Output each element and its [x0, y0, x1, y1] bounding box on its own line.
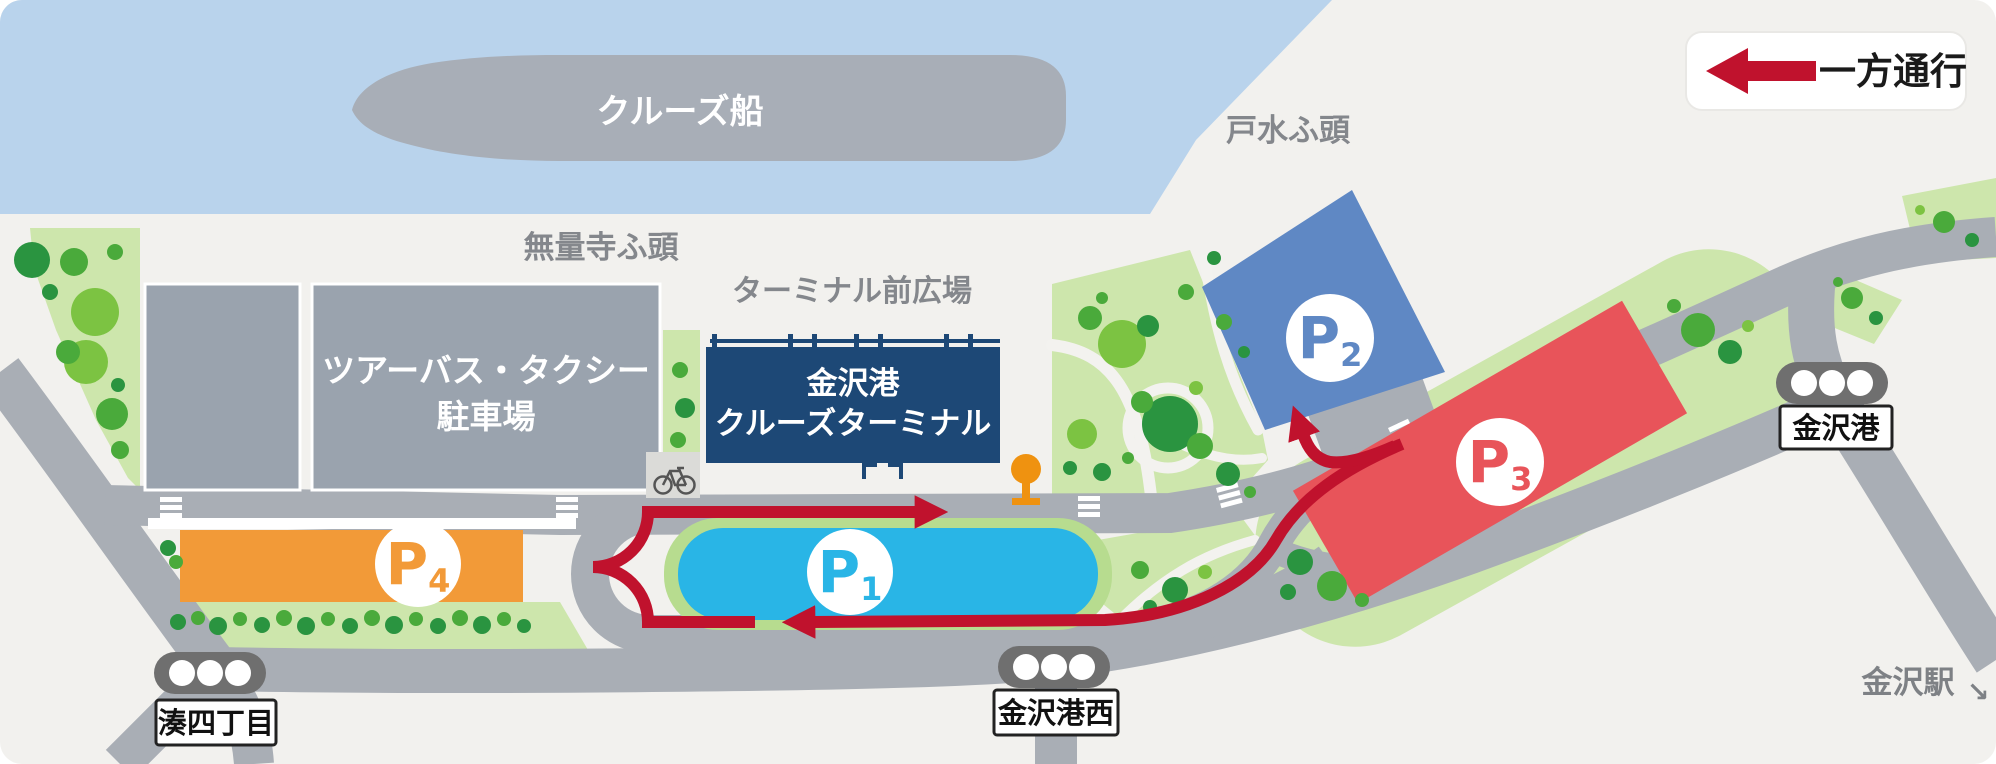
legend-one-way: 一方通行 [1686, 32, 1967, 110]
traffic-light-minato4: 湊四丁目 [154, 652, 276, 745]
p2-letter: P [1298, 304, 1341, 372]
sidewalk-strip [148, 518, 576, 529]
kanazawa-port-access-map: クルーズ船 [0, 0, 1996, 764]
legend-one-way-label: 一方通行 [1819, 50, 1967, 93]
traffic-light-kanazawako: 金沢港 [1776, 362, 1892, 449]
p3-number: 3 [1510, 460, 1532, 498]
p2-number: 2 [1340, 336, 1362, 374]
map-canvas: クルーズ船 [0, 0, 1996, 764]
cruise-terminal-building: 金沢港 クルーズターミナル [706, 334, 1000, 479]
p4-letter: P [386, 530, 429, 598]
terminal-label-line1: 金沢港 [806, 366, 901, 402]
terminal-label-line2: クルーズターミナル [715, 406, 992, 442]
parking-p4-area [180, 530, 523, 602]
p1-number: 1 [860, 570, 882, 608]
tomizu-pier-label: 戸水ふ頭 [1226, 113, 1351, 149]
p3-letter: P [1468, 428, 1511, 496]
traffic-light-kanazawako-nishi: 金沢港西 [994, 646, 1118, 735]
bus-taxi-buildings: ツアーバス・タクシー 駐車場 [145, 284, 660, 490]
bus-taxi-label-line1: ツアーバス・タクシー [322, 351, 650, 390]
signal-label-kanazawako-nishi: 金沢港西 [997, 696, 1114, 730]
parking-p1-badge: P1 [807, 529, 893, 615]
p4-number: 4 [428, 562, 450, 600]
parking-p4-badge: P4 [375, 521, 461, 607]
kanazawa-station-label: 金沢駅 [1861, 665, 1955, 701]
cruise-ship-label: クルーズ船 [596, 92, 763, 132]
muryoji-pier-label: 無量寺ふ頭 [524, 230, 680, 266]
bus-taxi-label-line2: 駐車場 [437, 397, 536, 436]
kanazawa-station-arrow-icon: ↘ [1967, 677, 1990, 708]
parking-p3-badge: P3 [1456, 418, 1544, 506]
parking-p2-badge: P2 [1286, 294, 1374, 382]
signal-label-kanazawako: 金沢港 [1791, 411, 1880, 445]
bicycle-icon [646, 452, 700, 498]
p1-letter: P [818, 538, 861, 606]
signal-label-minato4: 湊四丁目 [158, 706, 274, 740]
terminal-plaza-label: ターミナル前広場 [732, 274, 972, 309]
